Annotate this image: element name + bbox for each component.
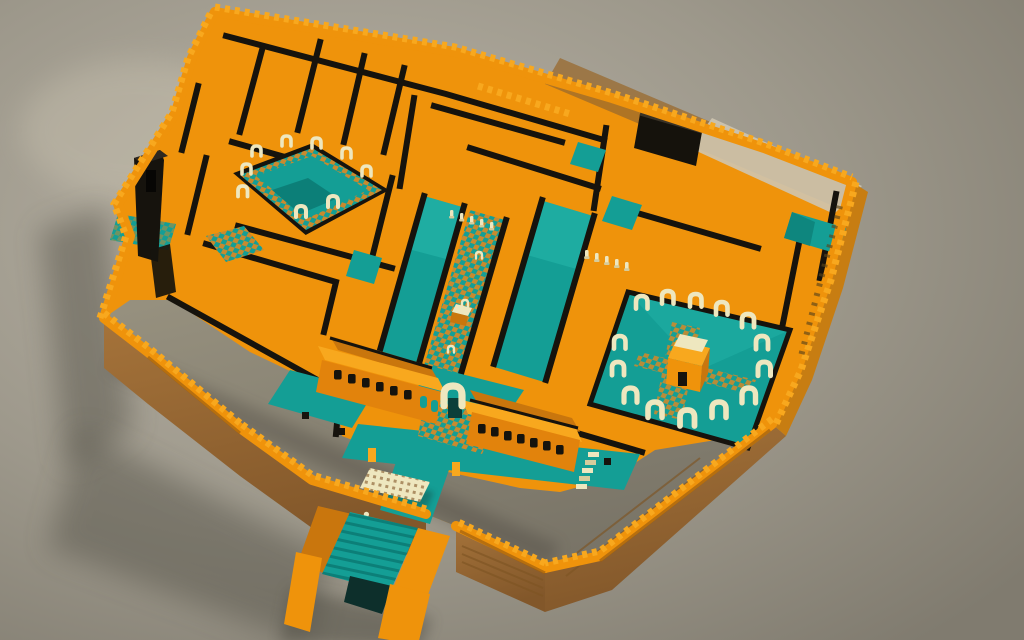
window-icon [556,445,564,455]
render-viewport: Isometric voxel-art palace complex - 3D … [0,0,1024,640]
terrace-door [338,428,345,435]
arched-window [431,400,438,412]
arched-window [420,396,427,408]
gate-post [368,448,376,462]
palace-render: Isometric voxel-art palace complex - 3D … [0,0,1024,640]
window-icon [334,370,342,380]
terrace-door [302,412,309,419]
step [576,484,587,489]
window-icon [390,386,398,396]
gate-post [452,462,460,476]
tower-niche [146,170,156,192]
window-icon [491,427,499,437]
window-icon [530,438,538,448]
pavilion-door [678,372,687,386]
window-icon [404,390,412,400]
window-icon [478,424,486,434]
step [579,476,590,481]
window-icon [376,382,384,392]
step [585,460,596,465]
window-icon [543,441,551,451]
step [588,452,599,457]
step [582,468,593,473]
window-icon [517,434,525,444]
window-icon [504,431,512,441]
terrace-door [604,458,611,465]
window-icon [348,374,356,384]
window-icon [362,378,370,388]
